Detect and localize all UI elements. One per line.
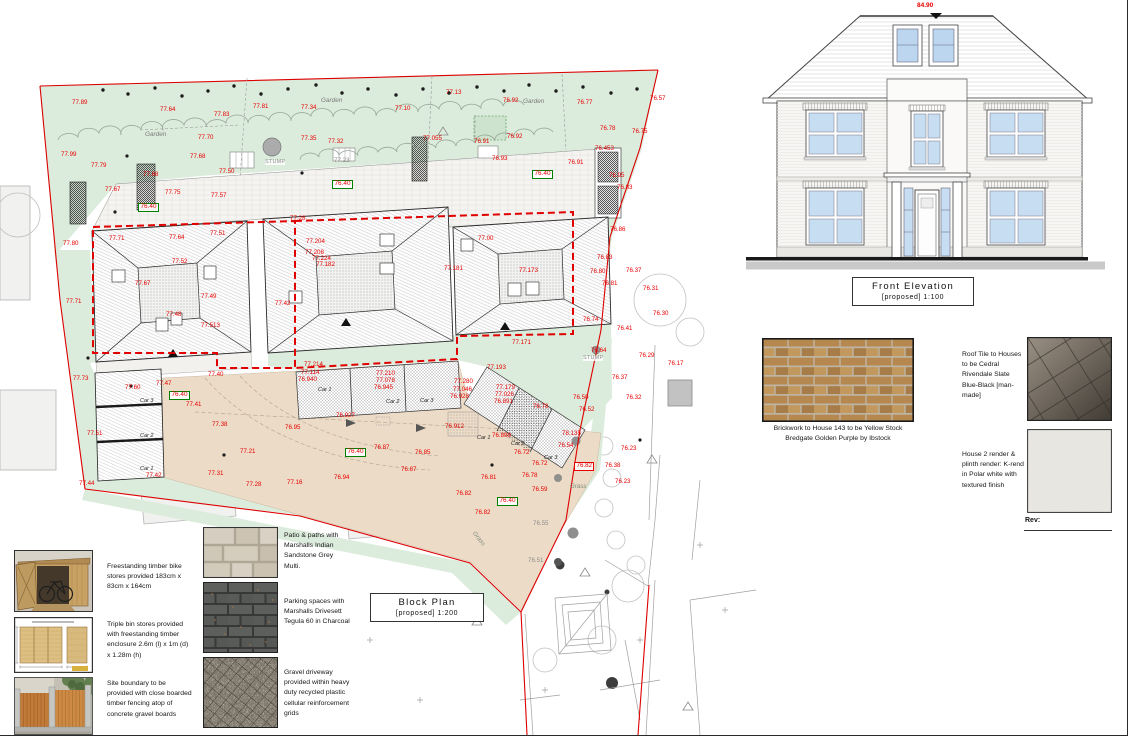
spot-level-label: 77.64 — [160, 107, 175, 113]
fence-photo — [14, 677, 93, 735]
spot-level-label: 77.23 — [334, 158, 349, 164]
spot-level-label: 77.173 — [519, 268, 538, 274]
parking-bay-label: Car 1 — [140, 467, 153, 473]
spot-level-label: 77.70 — [198, 135, 213, 141]
brick-caption: Brickwork to House 143 to be Yellow Stoc… — [760, 424, 916, 444]
parking-bay-label: Car 2 — [511, 442, 524, 448]
bike-store-caption: Freestanding timber bike stores provided… — [107, 562, 193, 593]
spot-level-label: 76.17 — [668, 361, 683, 367]
elevation-title: Front Elevation — [857, 281, 969, 292]
spot-level-label: 76.82 — [475, 510, 490, 516]
spot-level-label: 76.77 — [577, 100, 592, 106]
bin-store-caption: Triple bin stores provided with freestan… — [107, 620, 193, 661]
parking-bay-label: Car 3 — [544, 456, 557, 462]
spot-level-label: 76.37 — [626, 268, 641, 274]
roof-window — [929, 25, 958, 66]
spot-level-label: 76.52 — [579, 407, 594, 413]
spot-level-label: 77.204 — [306, 239, 325, 245]
spot-level-label: 77.181 — [444, 266, 463, 272]
spot-level-label: 76.72 — [514, 450, 529, 456]
spot-level-label: 77.21 — [240, 449, 255, 455]
spot-level-label: 77.67 — [135, 281, 150, 287]
roof-tile-swatch — [1027, 337, 1112, 421]
elevation-subtitle: [proposed] 1:100 — [857, 294, 969, 301]
spot-level-label: 76.78 — [533, 404, 548, 410]
rev-label: Rev: — [1025, 517, 1040, 524]
level-badge: 76.40 — [138, 203, 159, 212]
spot-level-label: 76.59 — [532, 487, 547, 493]
spot-level-label: 77.51 — [210, 231, 225, 237]
spot-level-label: 76.82 — [456, 491, 471, 497]
spot-level-label: 77.99 — [61, 152, 76, 158]
spot-level-label: 77.71 — [109, 236, 124, 242]
parking-bay-label: Car 2 — [386, 400, 399, 406]
spot-level-label: 76.30 — [653, 311, 668, 317]
roof — [763, 13, 1092, 103]
plan-subtitle: [proposed] 1:200 — [375, 610, 479, 617]
spot-level-label: 76.83 — [617, 185, 632, 191]
spot-level-label: 76.37 — [612, 375, 627, 381]
spot-level-label: 76.945 — [374, 385, 393, 391]
spot-level-label: 78.135 — [562, 431, 581, 437]
spot-level-label: 77.50 — [219, 169, 234, 175]
plan-title-box: Block Plan [proposed] 1:200 — [370, 593, 484, 622]
stump-label: STUMP — [265, 160, 285, 165]
upper-windows — [803, 103, 1048, 170]
spot-level-label: 76.75 — [632, 129, 647, 135]
spot-level-label: 76.31 — [643, 286, 658, 292]
spot-level-label: 77.42 — [275, 301, 290, 307]
spot-level-label: 76.85 — [415, 450, 430, 456]
spot-level-label: 77.513 — [201, 323, 220, 329]
spot-level-label: 77.60 — [125, 385, 140, 391]
spot-level-label: 77.28 — [246, 482, 261, 488]
spot-level-label: 76.87 — [401, 467, 416, 473]
parking-bay-label: Car 1 — [477, 436, 490, 442]
spot-level-label: 76.87 — [374, 445, 389, 451]
spot-level-label: 77.49 — [201, 294, 216, 300]
garden-label: Garden — [523, 99, 544, 105]
parking-swatch — [203, 582, 278, 653]
front-door — [915, 190, 939, 258]
spot-level-label: 76.912 — [445, 424, 464, 430]
gravel-swatch — [203, 657, 278, 728]
spot-level-label: 77.41 — [186, 402, 201, 408]
fence-caption: Site boundary to be provided with close … — [107, 679, 193, 720]
spot-level-label: 76.23 — [615, 479, 630, 485]
spot-level-label: 77.83 — [214, 112, 229, 118]
spot-level-label: 77.214 — [304, 362, 323, 368]
spot-level-label: 76.93 — [492, 156, 507, 162]
spot-level-label: 76.50 — [573, 395, 588, 401]
spot-level-label: 77.64 — [169, 235, 184, 241]
spot-level-label: 77.73 — [73, 376, 88, 382]
spot-level-label: 76.95 — [285, 425, 300, 431]
spot-level-label: 76.94 — [334, 475, 349, 481]
spot-level-label: 77.13 — [446, 90, 461, 96]
bin-store-photo — [14, 617, 93, 673]
spot-level-label: 77.193 — [487, 365, 506, 371]
spot-level-label: 76.23 — [621, 446, 636, 452]
stump-label: STUMP — [583, 356, 603, 361]
spot-level-label: 77.055 — [423, 136, 442, 142]
spot-level-label: 76.38 — [605, 463, 620, 469]
brick-swatch — [762, 338, 914, 422]
spot-level-label: 77.51 — [87, 431, 102, 437]
render-swatch — [1027, 429, 1112, 513]
roof-window — [893, 25, 922, 66]
spot-level-label: 76.898 — [492, 433, 511, 439]
spot-level-label: 76.95 — [609, 173, 624, 179]
patio-swatch — [203, 527, 278, 578]
spot-level-label: 76.64 — [591, 348, 606, 354]
level-badge: 76.82 — [574, 462, 594, 471]
garden-label: Garden — [321, 98, 342, 104]
ridge-level-label: 84.90 — [917, 2, 933, 9]
spot-level-label: 77.16 — [287, 480, 302, 486]
spot-level-label: 77.67 — [105, 187, 120, 193]
patio-caption: Patio & paths with Marshalls Indian Sand… — [284, 531, 350, 572]
spot-level-label: 77.34 — [301, 105, 316, 111]
spot-level-label: 76.91 — [568, 160, 583, 166]
spot-level-label: 77.75 — [165, 190, 180, 196]
spot-level-label: 76.78 — [600, 126, 615, 132]
parking-bay-label: Car 2 — [140, 434, 153, 440]
spot-level-label: 77.171 — [512, 340, 531, 346]
spot-level-label: 76.86 — [610, 227, 625, 233]
garden-label: Garden — [145, 132, 166, 138]
spot-level-label: 77.48 — [166, 312, 181, 318]
bike-store-photo — [14, 550, 93, 612]
spot-level-label: 77.35 — [301, 136, 316, 142]
parking-bay-label: Car 3 — [420, 399, 433, 405]
spot-level-label: 77.38 — [212, 422, 227, 428]
drawing-sheet: 77.8977.6477.8377.8177.3477.1077.1376.92… — [0, 0, 1133, 740]
spot-level-label: 76.54 — [558, 443, 573, 449]
parking-caption: Parking spaces with Marshalls Drivesett … — [284, 597, 350, 628]
center-gable — [887, 79, 967, 103]
spot-level-label: 77.68 — [143, 172, 158, 178]
spot-level-label: 76.29 — [639, 353, 654, 359]
ground-line — [746, 257, 1105, 270]
spot-level-label: 76.32 — [626, 395, 641, 401]
spot-level-label: 76.453 — [595, 146, 614, 152]
spot-level-label: 76.74 — [583, 317, 598, 323]
spot-level-label: 76.92 — [507, 134, 522, 140]
rev-line — [1024, 530, 1112, 531]
spot-level-label: 76.41 — [617, 326, 632, 332]
level-badge: 76.40 — [497, 497, 518, 506]
front-elevation-drawing — [745, 0, 1107, 272]
spot-level-label: 77.28 — [290, 216, 305, 222]
parking-bay-label: Car 3 — [140, 399, 153, 405]
spot-level-label: 77.40 — [208, 372, 223, 378]
level-badge: 76.40 — [332, 180, 353, 189]
spot-level-label: 77.57 — [211, 193, 226, 199]
spot-level-label: 76.83 — [597, 255, 612, 261]
spot-level-label: 76.927 — [336, 413, 355, 419]
spot-level-label: 77.280 — [454, 379, 473, 385]
spot-level-label: 76.891 — [494, 399, 513, 405]
spot-level-label: 77.31 — [208, 471, 223, 477]
spot-level-label: 76.57 — [650, 96, 665, 102]
parking-bay-label: Car 1 — [318, 388, 331, 394]
spot-level-label: 77.182 — [316, 262, 335, 268]
spot-level-label: 77.10 — [395, 106, 410, 112]
spot-level-label: 76.55 — [533, 521, 548, 527]
spot-level-label: 77.00 — [478, 236, 493, 242]
spot-level-label: 76.92 — [503, 98, 518, 104]
spot-level-label: 77.47 — [156, 381, 171, 387]
spot-level-label: 77.32 — [328, 139, 343, 145]
spot-level-label: 77.42 — [146, 473, 161, 479]
spot-level-label: 76.72 — [532, 461, 547, 467]
grass-label: Grass — [471, 531, 486, 548]
spot-level-label: 77.52 — [172, 259, 187, 265]
level-badge: 76.40 — [532, 170, 553, 179]
spot-level-label: 76.78 — [522, 473, 537, 479]
spot-level-label: 77.71 — [66, 299, 81, 305]
gravel-caption: Gravel driveway provided within heavy du… — [284, 668, 352, 719]
level-badge: 76.40 — [345, 448, 366, 457]
spot-level-label: 77.44 — [79, 481, 94, 487]
level-badge: 76.40 — [169, 391, 190, 400]
roof-tile-caption: Roof Tile to Houses to be Cedral Rivenda… — [962, 350, 1024, 401]
spot-level-label: 76.940 — [298, 377, 317, 383]
spot-level-label: 76.81 — [481, 475, 496, 481]
spot-level-label: 76.928 — [450, 394, 469, 400]
render-caption: House 2 render & plinth render: K-rend i… — [962, 450, 1024, 491]
spot-level-label: 77.68 — [190, 154, 205, 160]
grass-label: Grass — [570, 484, 587, 490]
spot-level-label: 77.79 — [91, 163, 106, 169]
plan-title: Block Plan — [375, 597, 479, 608]
spot-level-label: 76.80 — [590, 269, 605, 275]
spot-level-label: 76.91 — [474, 139, 489, 145]
elevation-title-box: Front Elevation [proposed] 1:100 — [852, 277, 974, 306]
spot-level-label: 77.80 — [63, 241, 78, 247]
spot-level-label: 77.81 — [253, 104, 268, 110]
spot-level-label: 76.51 — [528, 558, 543, 564]
spot-level-label: 77.89 — [72, 100, 87, 106]
spot-level-label: 76.81 — [602, 281, 617, 287]
